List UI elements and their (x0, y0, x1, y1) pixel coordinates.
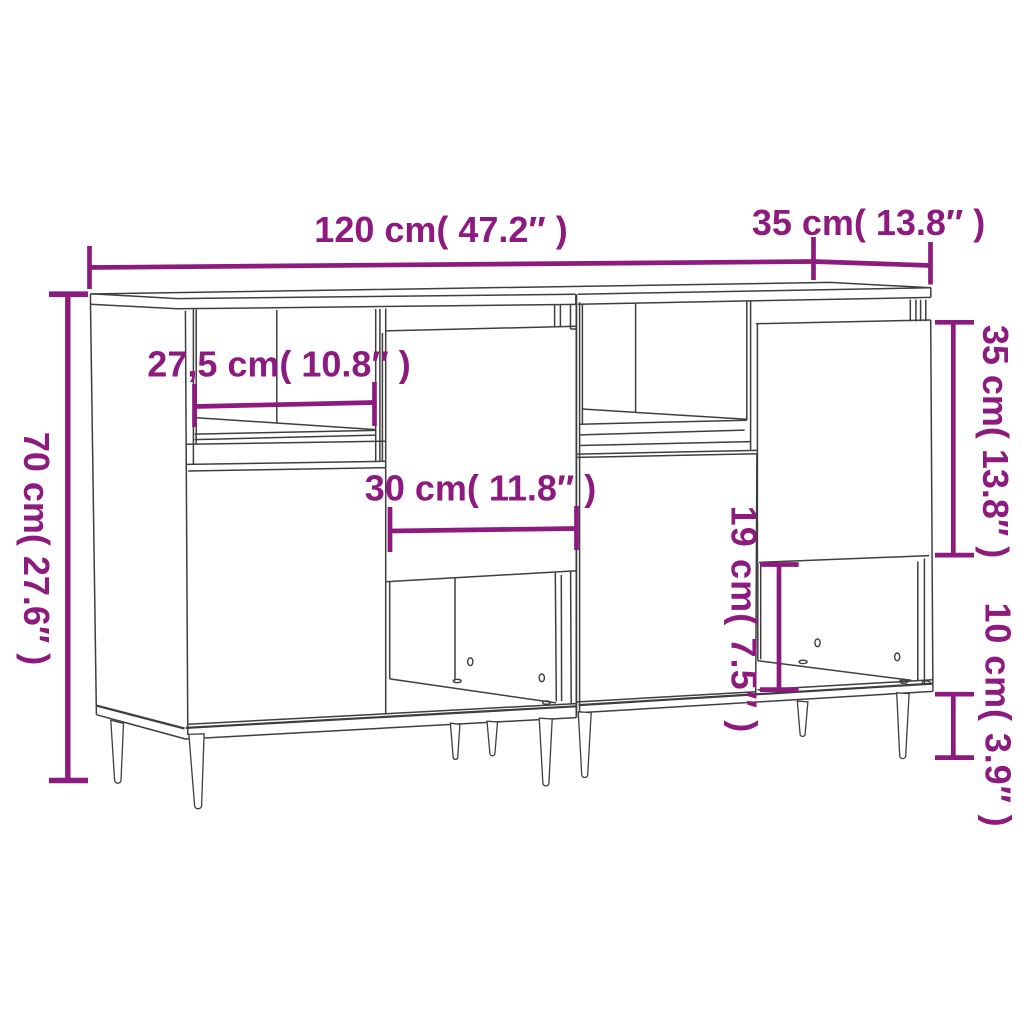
svg-text:70 cm( 27.6″ ): 70 cm( 27.6″ ) (16, 432, 57, 665)
svg-text:120 cm( 47.2″ ): 120 cm( 47.2″ ) (314, 209, 567, 250)
svg-text:35 cm( 13.8″ ): 35 cm( 13.8″ ) (752, 202, 985, 243)
svg-text:19 cm( 7.5″ ): 19 cm( 7.5″ ) (724, 506, 765, 734)
svg-text:30 cm( 11.8″ ): 30 cm( 11.8″ ) (365, 468, 596, 509)
svg-text:27,5 cm( 10.8″ ): 27,5 cm( 10.8″ ) (147, 344, 410, 385)
svg-text:10 cm( 3.9″ ): 10 cm( 3.9″ ) (978, 602, 1019, 827)
svg-text:35 cm( 13.8″ ): 35 cm( 13.8″ ) (975, 325, 1016, 558)
